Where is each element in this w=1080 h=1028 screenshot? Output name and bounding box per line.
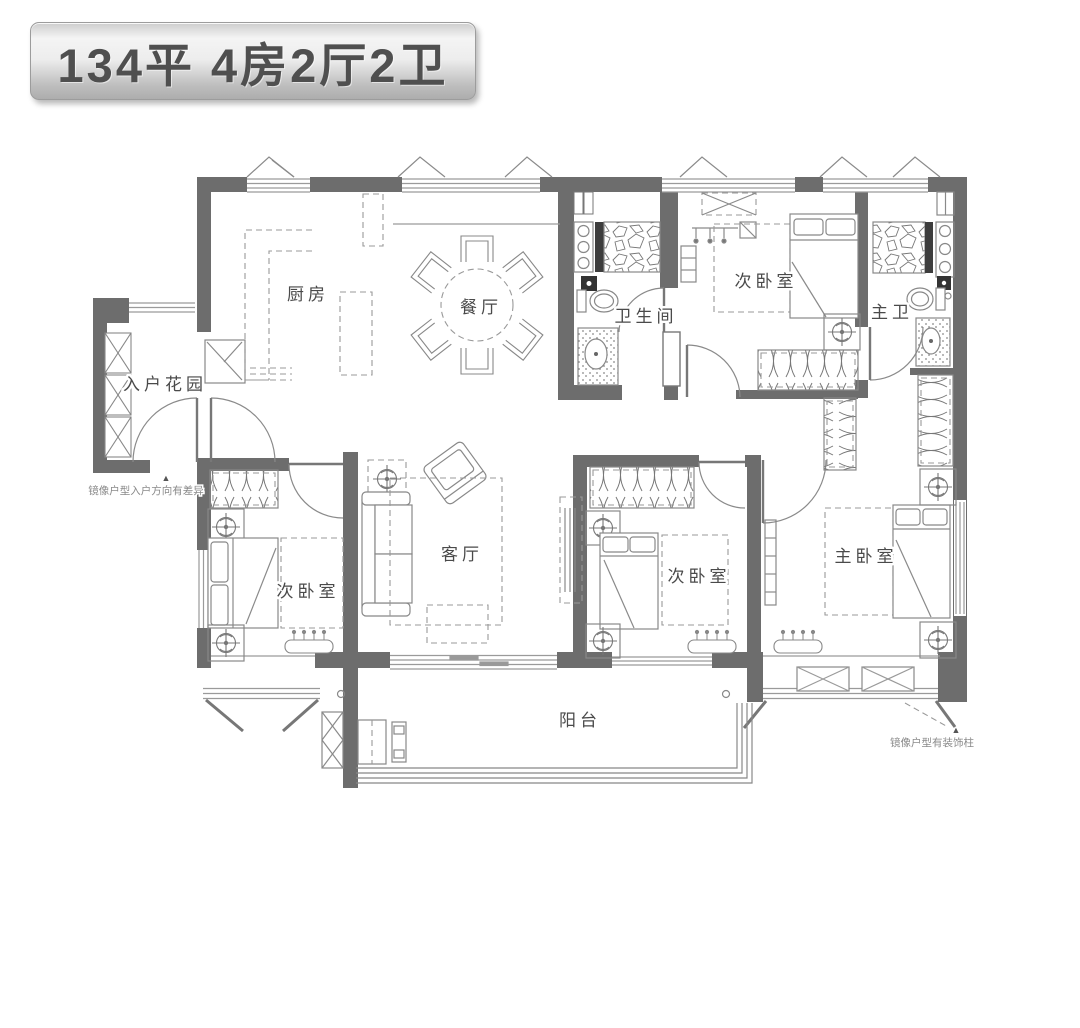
closet xyxy=(758,350,858,390)
bedroom-left xyxy=(208,470,343,661)
shoe-cabinet xyxy=(205,340,245,383)
label-dining: 餐厅 xyxy=(460,298,502,317)
planter-box xyxy=(105,417,131,457)
master-bath-fixtures xyxy=(873,192,954,366)
entry-note-marker: ▲ xyxy=(162,473,171,483)
living-room xyxy=(362,440,582,643)
balcony xyxy=(322,691,730,769)
bedroom-top-door xyxy=(687,345,740,397)
tv-cabinet xyxy=(765,520,776,605)
dining-chair xyxy=(503,319,543,360)
entry-garden xyxy=(105,333,292,457)
label-master-bath: 主卫 xyxy=(871,303,913,322)
toilet xyxy=(907,288,951,310)
label-balcony: 阳台 xyxy=(559,711,601,730)
floor-plan: 入户花园 厨房 餐厅 卫生间 次卧室 主卫 客厅 次卧室 次卧室 主卧室 阳台 … xyxy=(0,0,1080,1028)
column-note-text: 镜像户型有装饰柱 xyxy=(890,736,974,749)
sofa xyxy=(362,492,412,616)
bench xyxy=(285,630,333,653)
balcony-railing xyxy=(356,703,752,783)
ceiling-unit xyxy=(702,193,756,215)
bedroom-top xyxy=(681,193,860,390)
bed xyxy=(893,505,950,618)
dining-chair xyxy=(503,252,543,293)
kitchen-island xyxy=(340,292,372,375)
bed xyxy=(600,533,658,629)
closet xyxy=(918,375,953,466)
planter xyxy=(322,712,343,768)
drain xyxy=(723,691,730,698)
label-kitchen: 厨房 xyxy=(287,285,329,304)
sink xyxy=(578,328,618,385)
window-bedroom-left xyxy=(199,550,208,628)
entry-mat xyxy=(250,368,292,380)
bedroom-middle-door xyxy=(699,462,745,508)
washing-machine xyxy=(358,720,406,764)
balcony-slider-living xyxy=(390,656,557,670)
window-bedroom-middle xyxy=(612,657,712,665)
closet xyxy=(210,470,278,508)
closet xyxy=(824,398,856,470)
column-note-marker: ▲ xyxy=(952,725,961,735)
label-bedroom-top: 次卧室 xyxy=(735,272,798,291)
dining-chair xyxy=(461,236,493,262)
coffee-table xyxy=(427,605,488,643)
bay-window-master xyxy=(744,656,955,728)
bench xyxy=(688,630,736,653)
window-top-bedroom xyxy=(662,179,795,192)
window-top-right xyxy=(823,179,928,192)
label-living: 客厅 xyxy=(441,545,483,564)
wall-hooks xyxy=(692,222,756,243)
fridge xyxy=(363,194,383,246)
ac-unit xyxy=(920,469,956,505)
floor-plan-page: 134平 4房2厅2卫 xyxy=(0,0,1080,1028)
closet xyxy=(590,467,694,508)
shelf xyxy=(681,246,696,282)
bench xyxy=(774,630,822,653)
armchair xyxy=(422,440,488,505)
ac-unit xyxy=(824,314,860,350)
shower-wall xyxy=(595,222,604,272)
toilet xyxy=(577,290,618,312)
window-top-kitchen xyxy=(247,179,310,192)
casement-flaps xyxy=(247,157,940,177)
bed xyxy=(208,538,278,628)
dining-chair xyxy=(461,348,493,374)
label-entry-garden: 入户花园 xyxy=(123,375,207,394)
label-bedroom-left: 次卧室 xyxy=(277,582,340,601)
shower xyxy=(604,222,660,272)
shower-wall xyxy=(925,222,933,273)
dining-chair xyxy=(411,319,451,360)
bathroom-fixtures xyxy=(574,222,660,385)
window-garden xyxy=(129,303,195,312)
window-top-dining xyxy=(393,179,560,224)
master-bedroom-door xyxy=(763,460,826,523)
bay-window-bedroom-left xyxy=(203,656,320,731)
entry-note-text: 镜像户型入户方向有差异 xyxy=(88,484,204,497)
sink xyxy=(916,318,950,366)
entry-door xyxy=(133,398,275,462)
label-master-bedroom: 主卧室 xyxy=(835,547,898,566)
label-bedroom-middle: 次卧室 xyxy=(668,567,731,586)
dining-chair xyxy=(411,252,451,293)
label-bathroom: 卫生间 xyxy=(615,307,678,326)
shower xyxy=(873,222,925,273)
bed xyxy=(790,214,858,318)
bedroom-left-door xyxy=(289,464,343,518)
planter-box xyxy=(105,333,131,373)
